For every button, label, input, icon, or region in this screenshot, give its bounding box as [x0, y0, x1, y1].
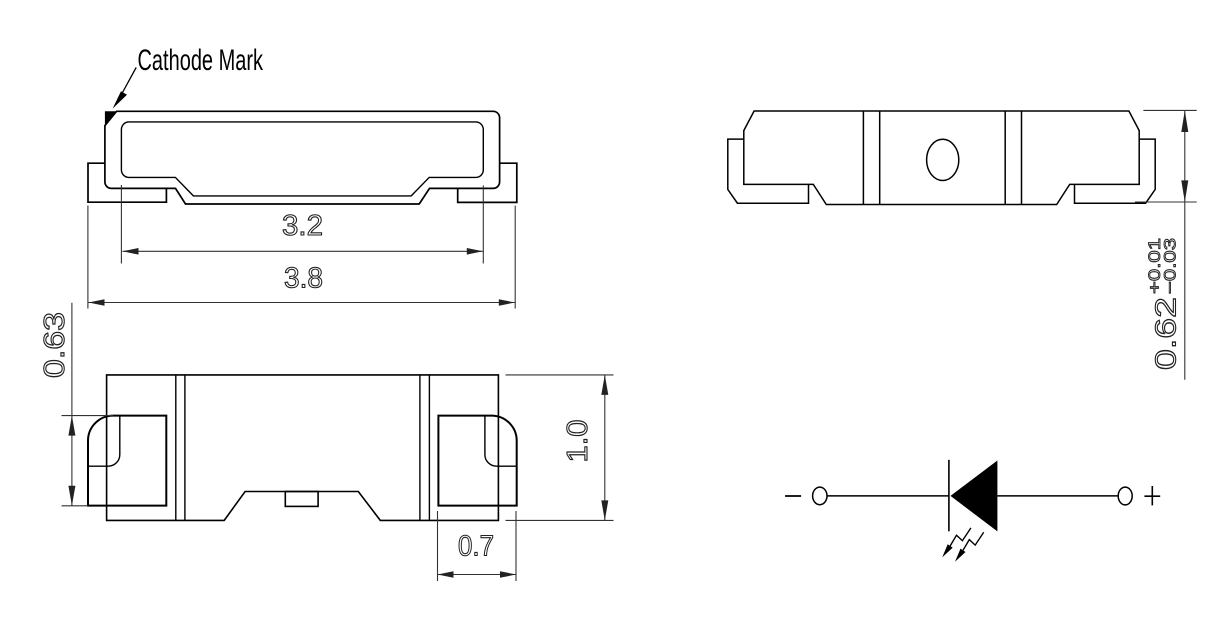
svg-text:Cathode Mark: Cathode Mark — [138, 44, 264, 77]
svg-text:0.62: 0.62 — [1151, 297, 1183, 370]
svg-text:0.7: 0.7 — [458, 531, 494, 563]
svg-text:3.2: 3.2 — [282, 210, 323, 242]
svg-text:−0.03: −0.03 — [1161, 238, 1180, 294]
svg-text:1.0: 1.0 — [562, 420, 594, 463]
svg-text:0.63: 0.63 — [39, 312, 71, 378]
svg-text:3.8: 3.8 — [284, 263, 323, 295]
